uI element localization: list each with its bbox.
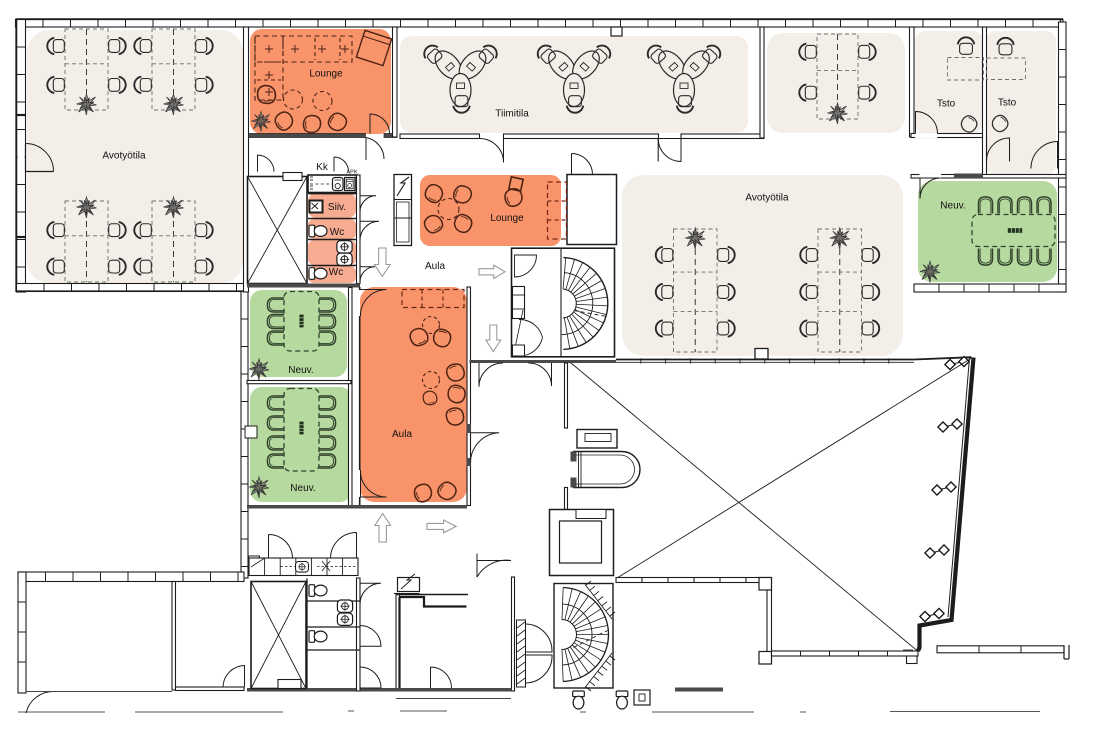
svg-text:Kk: Kk (316, 162, 329, 173)
svg-text:Wc: Wc (330, 227, 344, 238)
svg-text:Avotyötila: Avotyötila (745, 193, 789, 204)
svg-text:Neuv.: Neuv. (288, 365, 313, 376)
svg-text:Neuv.: Neuv. (290, 483, 315, 494)
svg-text:Neuv.: Neuv. (940, 201, 965, 212)
svg-text:Lounge: Lounge (490, 213, 524, 224)
svg-text:Aula: Aula (425, 261, 445, 272)
svg-text:Avotyötila: Avotyötila (102, 151, 146, 162)
svg-text:Tsto: Tsto (937, 99, 956, 110)
svg-text:Siiv.: Siiv. (328, 202, 346, 213)
svg-text:APK: APK (346, 170, 357, 176)
svg-text:Aula: Aula (392, 429, 412, 440)
svg-text:Lounge: Lounge (309, 69, 343, 80)
svg-text:Wc: Wc (329, 267, 343, 278)
svg-text:Tsto: Tsto (998, 98, 1017, 109)
svg-text:Tiimitila: Tiimitila (495, 109, 529, 120)
